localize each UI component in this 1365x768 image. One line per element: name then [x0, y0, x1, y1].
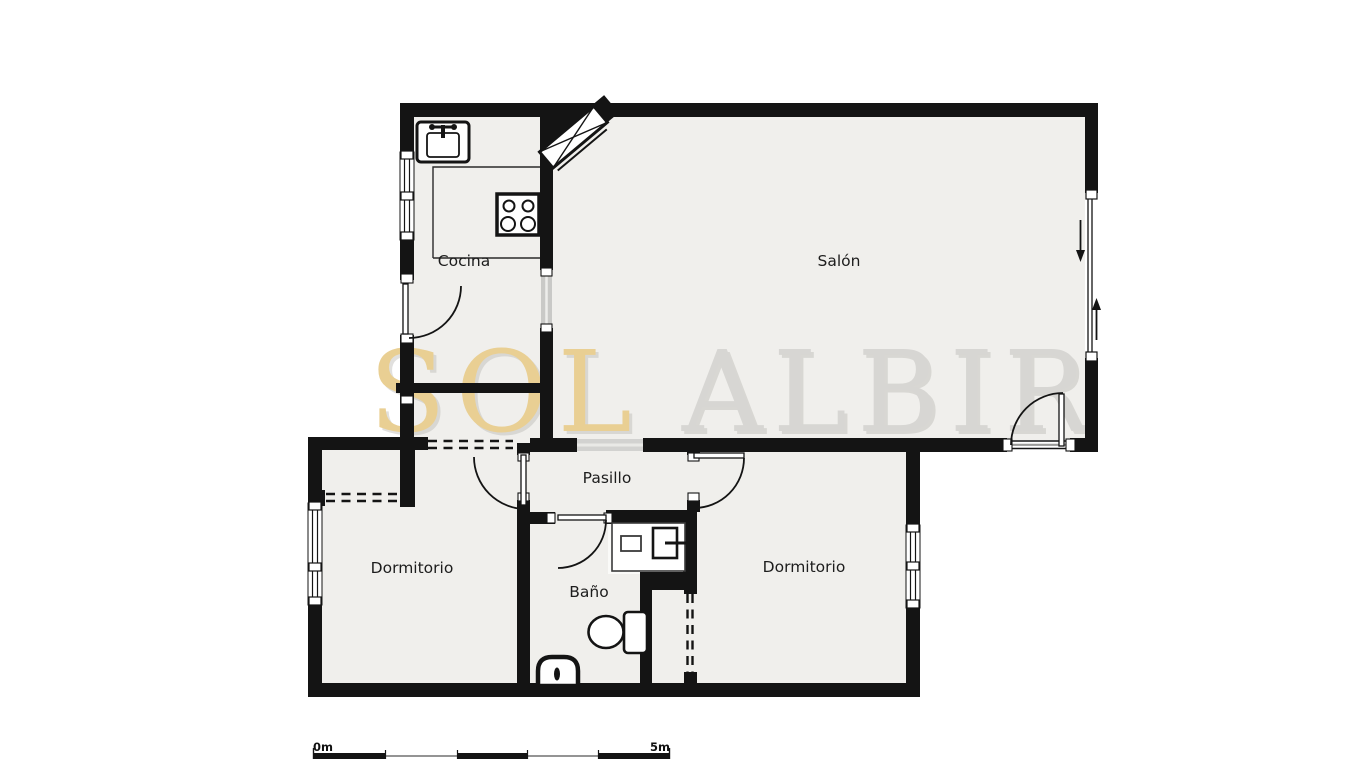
floor-plan-page: SOLALBIR SOLALBIR: [0, 0, 1365, 768]
kitchen-window: [400, 151, 414, 240]
room-label-dormitorio-left: Dormitorio: [371, 559, 454, 577]
room-label-dormitorio-right: Dormitorio: [763, 558, 846, 576]
stove-icon: [497, 194, 539, 235]
room-label-cocina: Cocina: [438, 252, 490, 270]
wall-segment: [687, 500, 700, 512]
floor-plan-drawing: SOLALBIR SOLALBIR: [0, 0, 1365, 768]
bedroom-left-window: [308, 502, 322, 605]
wall-segment: [517, 524, 530, 683]
scale-end-label: 5m: [650, 740, 670, 754]
wall-segment: [684, 580, 697, 594]
scale-bar: 0m 5m: [313, 740, 670, 759]
wall-segment: [530, 438, 577, 452]
wall-segment: [906, 450, 920, 525]
room-label-pasillo: Pasillo: [583, 469, 632, 487]
sink-icon: [417, 122, 469, 162]
wall-segment: [396, 383, 553, 393]
wall-segment: [308, 605, 322, 697]
scale-start-label: 0m: [313, 740, 333, 754]
wall-segment: [400, 103, 1098, 117]
bedroom-right-window: [906, 524, 920, 608]
wall-segment: [1085, 103, 1098, 193]
bidet-icon: [538, 657, 578, 686]
room-label-salon: Salón: [818, 252, 861, 270]
wall-segment: [400, 450, 415, 507]
washbasin-icon: [612, 523, 696, 571]
wall-segment: [308, 683, 920, 697]
room-label-bano: Baño: [569, 583, 608, 601]
wall-segment: [1085, 358, 1098, 452]
wall-segment: [684, 672, 697, 683]
wall-segment: [400, 103, 414, 152]
